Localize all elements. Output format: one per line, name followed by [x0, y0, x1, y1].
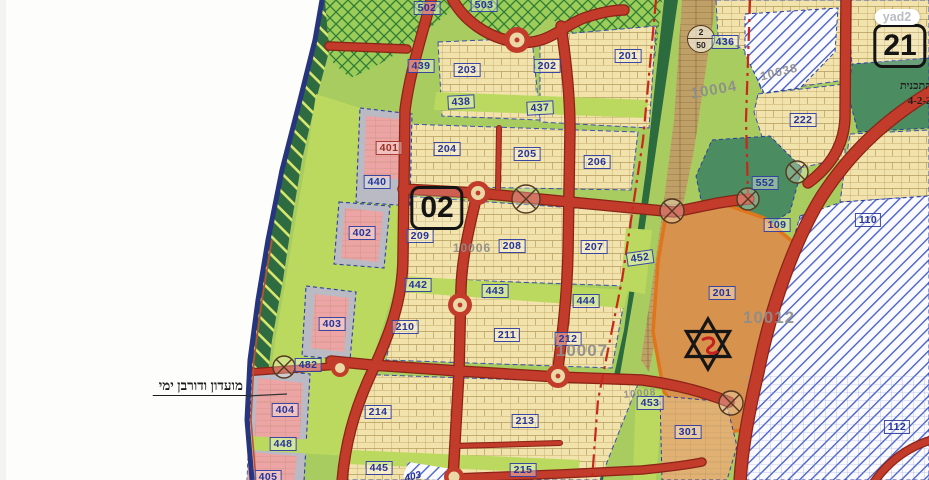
label-layer: 5025034392032022014364384372225524014402…: [0, 0, 929, 480]
zone-label-482: 482: [295, 358, 322, 372]
zone-label-110: 110: [855, 213, 881, 227]
zone-label-436: 436: [712, 35, 739, 49]
zone-label-403: 403: [319, 317, 346, 331]
zone-label-203: 203: [454, 63, 481, 77]
zone-label-206: 206: [584, 155, 611, 169]
zone-label-207: 207: [581, 240, 608, 254]
sheet-label-02: 02: [410, 186, 463, 230]
zone-label-439: 439: [408, 59, 435, 73]
zone-label-301: 301: [675, 425, 702, 439]
zone-label-448: 448: [270, 437, 297, 451]
hebrew-note-label-מועדון ודורבן ימי: מועדון ודורבן ימי: [153, 378, 247, 396]
watermark-label-yad2: yad2: [875, 9, 920, 25]
zone-label-202: 202: [534, 59, 561, 73]
zone-label-208: 208: [499, 239, 526, 253]
plannum-label-10038: 10038: [759, 61, 800, 84]
hebrew-small-label-ת התכנית: ת התכנית: [900, 80, 929, 92]
plannum-label-10012: 10012: [743, 308, 795, 328]
zone-label-445: 445: [366, 461, 393, 475]
zone-label-444: 444: [573, 294, 600, 308]
plannum-label-10007: 10007: [556, 341, 608, 361]
zone-label-222: 222: [790, 113, 817, 127]
sheet-label-21: 21: [873, 24, 926, 68]
zone-label-211: 211: [494, 328, 520, 342]
zone-label-503: 503: [471, 0, 498, 12]
zone-label-502: 502: [414, 1, 441, 15]
scanned-planning-map: 2 50 50250343920320220143643843722255240…: [0, 0, 929, 480]
zone-label-213: 213: [512, 414, 539, 428]
zone-label-443: 443: [482, 284, 509, 298]
zone-label-214: 214: [365, 405, 392, 419]
zone-label-452: 452: [626, 249, 654, 267]
zone-label-112: 112: [884, 420, 910, 434]
zone-label-201: 201: [615, 49, 642, 63]
zone-label-437: 437: [526, 100, 553, 115]
zone-label-210: 210: [392, 320, 419, 334]
zone-label-109: 109: [764, 218, 791, 232]
zone-label-440: 440: [364, 175, 391, 189]
zone-red-label-401: 401: [376, 141, 403, 155]
zone-label-402: 402: [349, 226, 376, 240]
zone-label-405: 405: [255, 470, 282, 480]
zone-label-204: 204: [434, 142, 461, 156]
zone-plain-label-403: 403: [404, 470, 423, 480]
zone-label-205: 205: [514, 147, 541, 161]
zone-label-404: 404: [272, 403, 299, 417]
zone-label-201: 201: [709, 286, 736, 300]
zone-label-442: 442: [405, 278, 432, 292]
hebrew-small-label-ת 4-2-2: ת 4-2-2: [908, 95, 929, 107]
plannum-label-10004: 10004: [690, 78, 739, 103]
plannum-label-10006: 10006: [453, 241, 491, 255]
zone-label-215: 215: [510, 463, 537, 477]
zone-label-209: 209: [407, 229, 434, 243]
zone-label-438: 438: [447, 94, 474, 109]
zone-label-552: 552: [752, 176, 779, 190]
